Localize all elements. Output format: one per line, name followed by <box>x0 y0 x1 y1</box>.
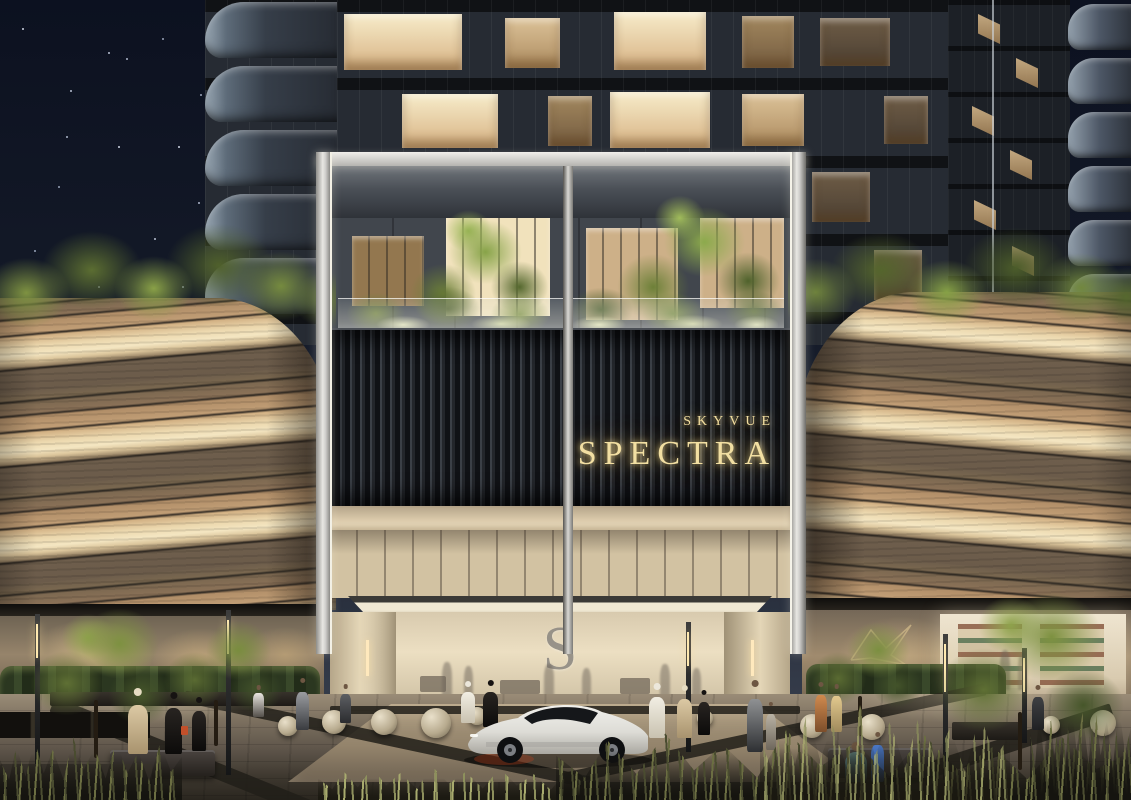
lit-window <box>742 16 794 68</box>
lit-window <box>402 94 498 148</box>
pedestrian <box>815 682 827 732</box>
lit-window <box>505 18 560 68</box>
pedestrian <box>831 684 842 732</box>
portal-frame-column <box>316 152 332 654</box>
roof-garden-trees-right <box>788 224 1131 334</box>
pedestrian <box>1032 685 1044 730</box>
tree-trunk <box>214 700 218 746</box>
roof-garden-trees-left <box>0 220 336 334</box>
pedestrian <box>253 685 264 717</box>
stone-sphere-bollard <box>371 709 397 735</box>
wall-light <box>751 640 754 676</box>
portal-frame-beam <box>316 152 806 166</box>
far-tower-floor <box>1068 112 1131 158</box>
lit-window <box>1010 150 1032 180</box>
lit-window <box>978 14 1000 44</box>
entrance-upper-glazing <box>330 530 790 598</box>
dark-slat-facade: SKYVUE SPECTRA <box>330 328 790 511</box>
lit-window <box>614 12 706 70</box>
wall-light <box>366 640 369 676</box>
far-tower-floor <box>1068 58 1131 104</box>
lit-window <box>548 96 592 146</box>
lit-window <box>820 18 890 66</box>
tree-trunk <box>1018 712 1022 770</box>
child <box>766 702 776 750</box>
signage-brand-line: SKYVUE <box>578 414 776 430</box>
portal-frame-column <box>790 152 806 654</box>
white-sports-car <box>458 684 658 770</box>
entrance-fascia <box>330 506 790 530</box>
architectural-render-scene: SKYVUE SPECTRA S <box>0 0 1131 800</box>
facade-shading <box>795 292 1131 604</box>
podium-right-banded-facade <box>795 292 1131 604</box>
pedestrian-with-child <box>747 680 763 752</box>
pedestrian-kandura <box>677 685 692 738</box>
curved-glass-floor <box>205 2 337 58</box>
lit-window <box>742 94 804 146</box>
lit-window <box>884 96 928 144</box>
lit-window <box>344 14 462 70</box>
pedestrian-abaya <box>165 692 182 754</box>
facade-shading <box>0 298 336 610</box>
podium-left-banded-facade <box>0 298 336 610</box>
curved-glass-floor <box>205 66 337 122</box>
pedestrian-abaya <box>698 690 710 735</box>
pedestrian <box>296 678 309 730</box>
stars <box>22 28 24 30</box>
building-signage: SKYVUE SPECTRA <box>578 414 776 473</box>
portal-center-mullion <box>563 166 573 654</box>
lit-window <box>812 172 870 222</box>
lit-window <box>972 106 994 136</box>
far-tower-floor <box>1068 4 1131 50</box>
lit-window <box>1016 58 1038 88</box>
pedestrian-kandura <box>128 688 148 754</box>
pedestrian-abaya <box>192 697 206 751</box>
far-tower-floor <box>1068 166 1131 212</box>
lit-window <box>610 92 710 148</box>
signage-name-line: SPECTRA <box>578 435 776 473</box>
stone-sphere-bollard <box>421 708 451 738</box>
lobby-monogram: S <box>330 618 790 680</box>
pedestrian <box>340 684 351 723</box>
